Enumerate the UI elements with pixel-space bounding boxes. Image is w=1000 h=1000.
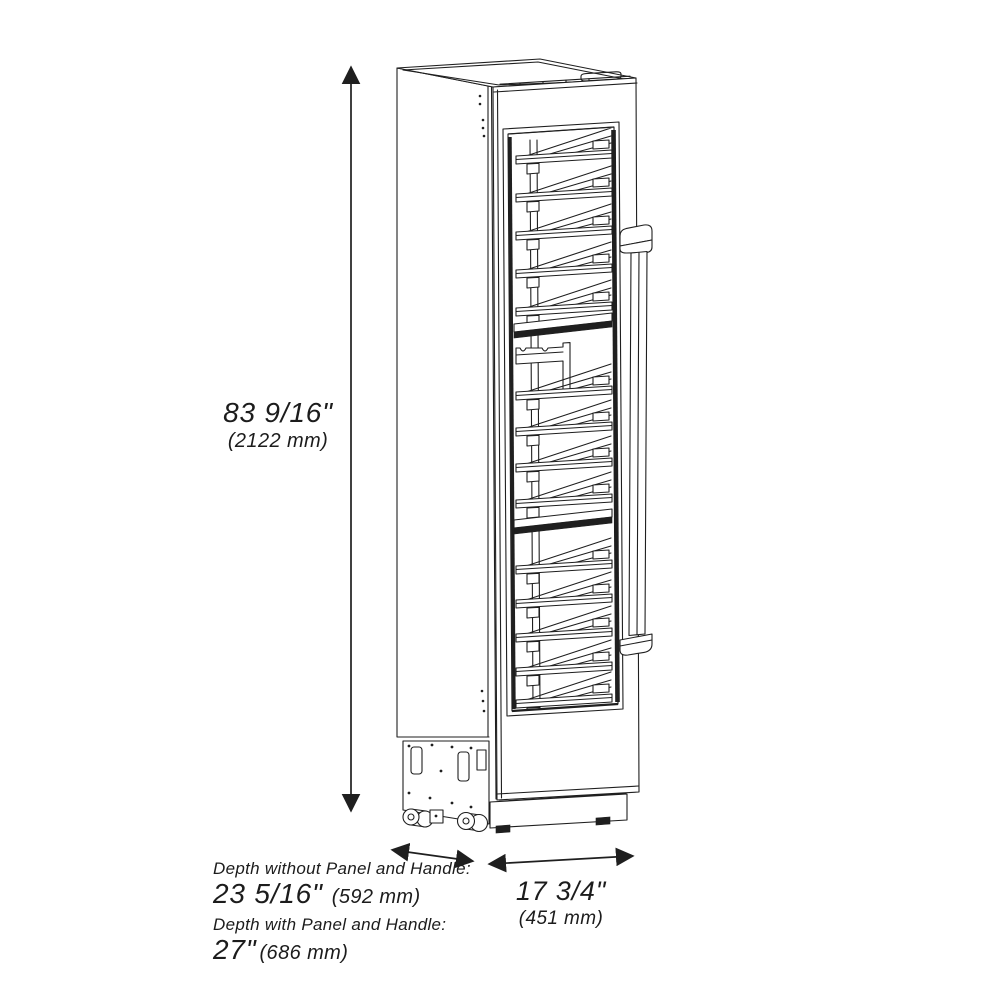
dimension-diagram: 83 9/16" (2122 mm) Depth without Panel a… xyxy=(0,0,1000,1000)
depth-without-value: 23 5/16" xyxy=(213,878,323,909)
width-metric: (451 mm) xyxy=(490,909,632,930)
width-dimension-arrow xyxy=(490,856,632,864)
width-dimension-label: 17 3/4" (451 mm) xyxy=(490,877,632,930)
side-panel xyxy=(397,68,496,799)
width-value: 17 3/4" xyxy=(516,876,606,906)
depth-dimension-labels: Depth without Panel and Handle: 23 5/16"… xyxy=(213,860,471,965)
depth-with-caption: Depth with Panel and Handle: xyxy=(213,916,471,934)
depth-with-metric: (686 mm) xyxy=(259,942,348,964)
wine-cooler-line-drawing xyxy=(0,0,1000,1000)
height-metric: (2122 mm) xyxy=(198,431,358,453)
depth-with-value: 27" xyxy=(213,934,256,965)
height-value: 83 9/16" xyxy=(223,397,333,428)
depth-without-metric: (592 mm) xyxy=(332,886,421,908)
height-dimension-label: 83 9/16" (2122 mm) xyxy=(198,398,358,453)
depth-without-caption: Depth without Panel and Handle: xyxy=(213,860,471,878)
